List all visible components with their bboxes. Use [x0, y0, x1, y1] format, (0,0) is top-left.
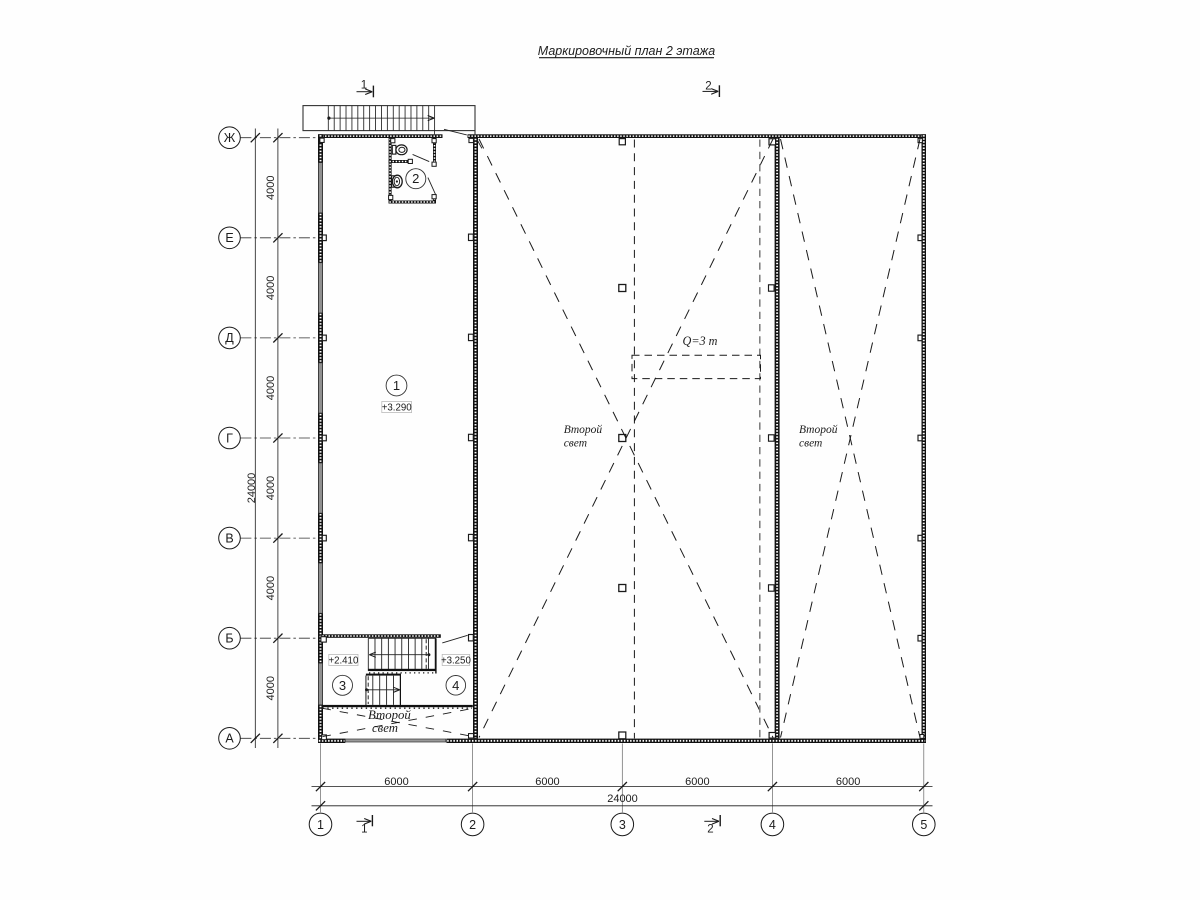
svg-text:4000: 4000	[265, 276, 277, 300]
svg-text:6000: 6000	[535, 776, 559, 788]
svg-text:Ж: Ж	[224, 131, 236, 145]
svg-text:Q=3 т: Q=3 т	[683, 334, 718, 348]
svg-text:4000: 4000	[265, 376, 277, 400]
svg-text:24000: 24000	[246, 473, 258, 504]
svg-text:Б: Б	[225, 632, 233, 646]
svg-text:24000: 24000	[607, 793, 638, 805]
svg-text:Е: Е	[225, 231, 233, 245]
svg-text:Второй: Второй	[564, 423, 603, 436]
svg-text:свет: свет	[372, 721, 398, 735]
svg-text:6000: 6000	[836, 776, 860, 788]
svg-text:1: 1	[361, 823, 367, 835]
svg-text:3: 3	[339, 678, 346, 693]
svg-text:2: 2	[469, 818, 476, 832]
svg-text:4000: 4000	[265, 676, 277, 700]
svg-text:Д: Д	[225, 331, 234, 345]
svg-text:4: 4	[452, 678, 459, 693]
svg-text:+3.250: +3.250	[441, 655, 472, 666]
svg-text:2: 2	[705, 80, 711, 92]
svg-text:1: 1	[393, 378, 400, 393]
svg-text:2: 2	[412, 171, 419, 186]
svg-text:4000: 4000	[265, 476, 277, 500]
svg-text:1: 1	[317, 818, 324, 832]
svg-text:свет: свет	[564, 437, 587, 449]
svg-text:5: 5	[920, 818, 927, 832]
svg-text:+2.410: +2.410	[328, 655, 359, 666]
svg-text:В: В	[225, 531, 233, 545]
svg-text:Маркировочный план 2 этажа: Маркировочный план 2 этажа	[538, 44, 715, 58]
svg-text:Второй: Второй	[799, 423, 838, 436]
svg-text:4000: 4000	[265, 176, 277, 200]
svg-text:3: 3	[619, 818, 626, 832]
svg-text:А: А	[225, 732, 234, 746]
svg-text:4000: 4000	[265, 576, 277, 600]
svg-text:+3.290: +3.290	[382, 403, 413, 414]
svg-text:6000: 6000	[384, 776, 408, 788]
svg-text:4: 4	[769, 818, 776, 832]
svg-text:6000: 6000	[685, 776, 709, 788]
svg-text:Г: Г	[226, 431, 233, 445]
svg-text:2: 2	[707, 823, 713, 835]
svg-text:свет: свет	[799, 437, 822, 449]
